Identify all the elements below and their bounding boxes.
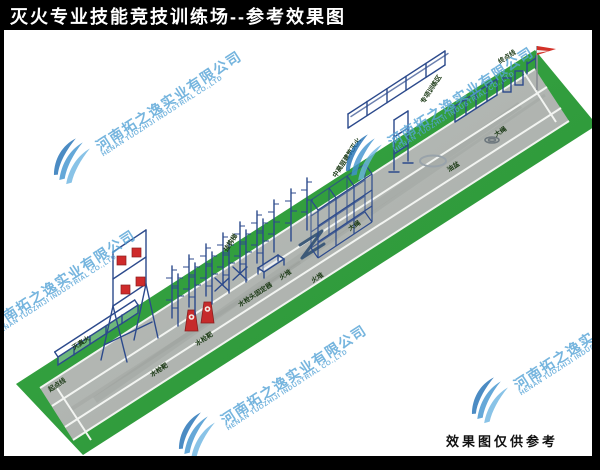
render-area: 终点线大绳油盆专项训练区中高层建筑灭火大绳火堆火堆水枪头固定器挂钩梯水枪靶水枪靶… xyxy=(4,30,592,456)
page-title: 灭火专业技能竞技训练场--参考效果图 xyxy=(10,3,346,29)
training-ground-scene: 终点线大绳油盆专项训练区中高层建筑灭火大绳火堆火堆水枪头固定器挂钩梯水枪靶水枪靶… xyxy=(4,30,592,456)
field-label: 专项训练区 xyxy=(418,73,444,106)
rendered-page: 灭火专业技能竞技训练场--参考效果图 xyxy=(0,0,600,470)
title-bar: 灭火专业技能竞技训练场--参考效果图 xyxy=(0,0,600,30)
reference-note: 效果图仅供参考 xyxy=(446,431,558,450)
field-label: 终点线 xyxy=(496,47,518,65)
